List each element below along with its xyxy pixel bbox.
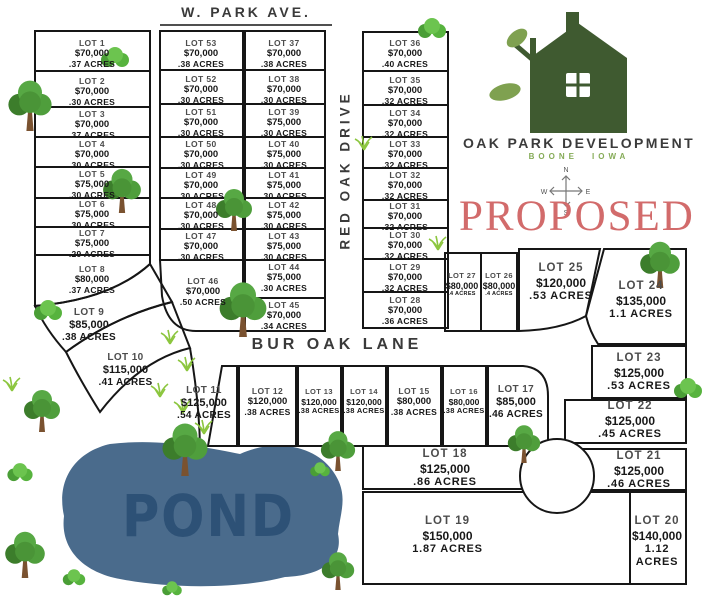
proposed-stamp: PROPOSED (459, 192, 695, 241)
tree-icon (5, 532, 45, 578)
tree-icon (8, 81, 51, 131)
lot-23-parcel (592, 346, 686, 398)
lot-15-parcel (388, 366, 441, 446)
lot-18-parcel (363, 446, 545, 489)
lot-4-parcel (35, 137, 150, 167)
lot-42-parcel (245, 198, 325, 229)
lot-31-parcel (363, 200, 448, 228)
grass-icon (174, 399, 191, 413)
lot-2-parcel (35, 71, 150, 107)
pond-label: POND (122, 482, 295, 550)
lot-22-parcel (565, 400, 686, 443)
plat-map: N E S W (0, 0, 715, 599)
lot-6-parcel (35, 198, 150, 227)
tree-icon (216, 189, 252, 231)
tree-icon (220, 282, 267, 337)
logo-location: BOONEIOWA (443, 152, 715, 161)
grass-icon (429, 236, 446, 250)
lot-16-parcel (443, 366, 486, 446)
lot-21-parcel (580, 449, 686, 490)
logo-state: IOWA (592, 152, 629, 161)
street-label-red-oak-drive: RED OAK DRIVE (338, 90, 353, 249)
lot-47-parcel (160, 229, 243, 260)
lot-41-parcel (245, 168, 325, 198)
lot-19-parcel (363, 492, 630, 584)
lot-32-parcel (363, 168, 448, 200)
lot-12-parcel (239, 366, 296, 446)
lot-29-parcel (363, 259, 448, 292)
grass-icon (161, 330, 178, 344)
lot-26-parcel (481, 253, 517, 331)
lot-25-parcel (519, 249, 600, 331)
lot-11-parcel (208, 366, 237, 446)
lot-3-parcel (35, 107, 150, 137)
bush-icon (63, 569, 85, 585)
compass-n: N (563, 167, 568, 174)
lot-34-parcel (363, 105, 448, 137)
lot-37-parcel (245, 31, 325, 70)
logo-city: BOONE (529, 152, 578, 161)
lot-50-parcel (160, 137, 243, 168)
lot-36-parcel (363, 32, 448, 71)
lot-8-parcel (35, 255, 150, 306)
lot-27-parcel (445, 253, 481, 331)
tree-icon (103, 169, 141, 213)
plat-drawing: N E S W (0, 0, 715, 599)
tree-icon (24, 390, 60, 432)
bush-icon (7, 463, 32, 481)
street-label-w-park-ave: W. PARK AVE. (158, 4, 334, 20)
lot-39-parcel (245, 104, 325, 137)
lot-20-parcel (630, 492, 686, 584)
lot-40-parcel (245, 137, 325, 168)
street-label-bur-oak-lane: BUR OAK LANE (230, 336, 444, 354)
bush-icon (101, 47, 129, 67)
lot-33-parcel (363, 137, 448, 168)
lot-38-parcel (245, 70, 325, 104)
grass-icon (3, 377, 20, 391)
lot-35-parcel (363, 71, 448, 105)
lot-7-parcel (35, 227, 150, 255)
lot-44-parcel (245, 260, 325, 298)
logo-house-icon (487, 12, 627, 133)
bush-icon (418, 18, 446, 38)
bush-icon (674, 378, 702, 398)
logo-company-name: OAK PARK DEVELOPMENT (443, 135, 715, 151)
lot-52-parcel (160, 70, 243, 104)
lot-51-parcel (160, 104, 243, 137)
lot-43-parcel (245, 229, 325, 260)
lot-14-parcel (343, 366, 386, 446)
lot-53-parcel (160, 31, 243, 70)
grass-icon (195, 420, 212, 434)
lot-1-parcel (35, 31, 150, 71)
grass-icon (151, 383, 168, 397)
lot-28-parcel (363, 292, 448, 328)
